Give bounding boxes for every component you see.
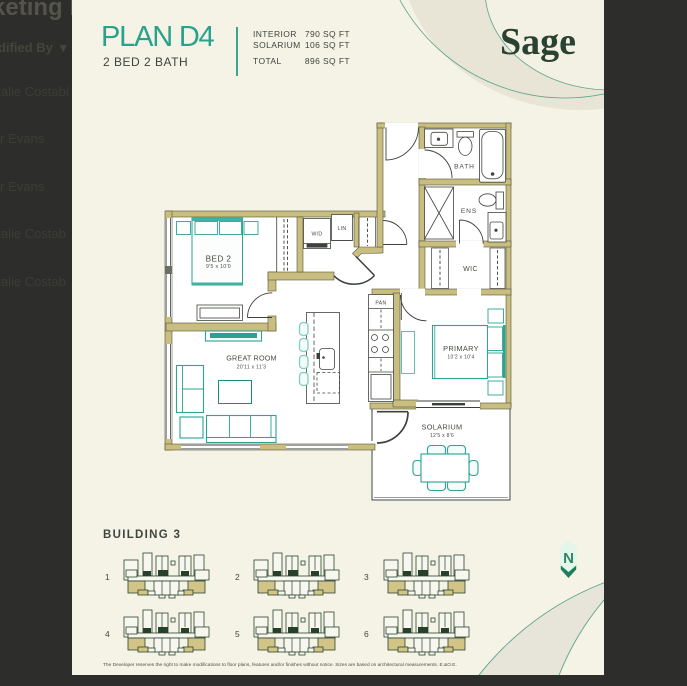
svg-text:PAN: PAN	[375, 301, 386, 307]
svg-text:20'11 x 11'3: 20'11 x 11'3	[237, 365, 267, 371]
svg-text:5: 5	[235, 629, 240, 639]
svg-text:PRIMARY: PRIMARY	[443, 344, 479, 353]
svg-text:LIN: LIN	[338, 226, 347, 232]
svg-text:W/D: W/D	[312, 232, 323, 238]
svg-text:2: 2	[235, 572, 240, 582]
svg-text:12'5 x 8'6: 12'5 x 8'6	[430, 433, 454, 439]
svg-text:ENS: ENS	[461, 208, 477, 215]
svg-text:6: 6	[364, 629, 369, 639]
svg-text:WIC: WIC	[463, 266, 478, 273]
svg-text:3: 3	[364, 572, 369, 582]
svg-text:SOLARIUM: SOLARIUM	[421, 423, 462, 432]
svg-text:BATH: BATH	[454, 164, 475, 171]
svg-text:10'2 x 10'4: 10'2 x 10'4	[447, 355, 474, 361]
svg-text:1: 1	[105, 572, 110, 582]
svg-text:4: 4	[105, 629, 110, 639]
svg-text:N: N	[563, 550, 574, 567]
svg-text:GREAT ROOM: GREAT ROOM	[226, 354, 276, 363]
svg-text:9'5 x 10'0: 9'5 x 10'0	[206, 264, 231, 270]
svg-text:BED 2: BED 2	[206, 255, 232, 264]
